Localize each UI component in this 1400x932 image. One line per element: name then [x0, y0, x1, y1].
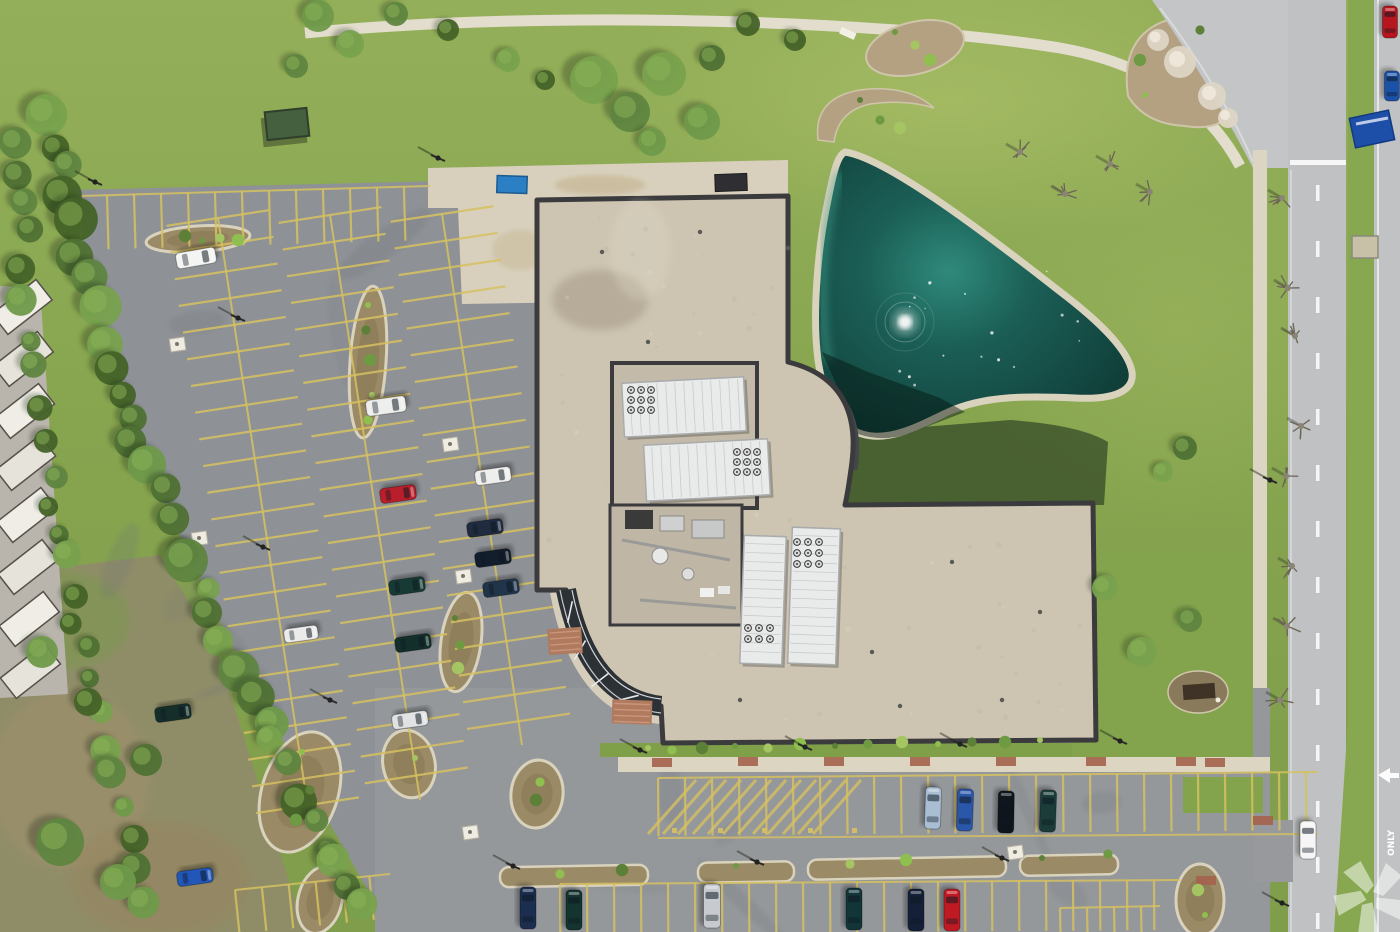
shrub: [910, 40, 919, 49]
gravel-speckle: [547, 537, 552, 542]
car-body: [908, 889, 924, 931]
gravel-speckle: [1057, 701, 1059, 703]
car-windshield: [1302, 828, 1314, 834]
gravel-speckle: [784, 718, 787, 721]
tree-canopy-highlight: [305, 3, 323, 21]
handicap-symbol-mark: [718, 828, 723, 833]
tree-canopy-highlight: [1095, 578, 1109, 592]
shrub: [896, 736, 908, 748]
vent-fan-hub: [746, 451, 748, 453]
tree-canopy-highlight: [284, 787, 304, 807]
flowering-tree-highlight: [1169, 51, 1185, 67]
shrub: [967, 737, 976, 746]
vent-fan-hub: [736, 451, 738, 453]
gravel-speckle: [598, 217, 600, 219]
vent-fan-hub: [630, 389, 632, 391]
car-body: [1300, 821, 1316, 859]
tree-canopy-highlight: [307, 811, 320, 824]
shrub: [832, 743, 838, 749]
shrub: [1192, 884, 1204, 896]
water-sparkle: [898, 370, 901, 373]
shrub: [732, 743, 738, 749]
tree-canopy-highlight: [62, 615, 74, 627]
tree-canopy-highlight: [537, 72, 548, 83]
car-body: [998, 791, 1015, 833]
stall-line: [1060, 908, 1061, 932]
utility-pad-cover: [1013, 850, 1017, 854]
shrub: [290, 814, 302, 826]
gravel-speckle: [746, 326, 752, 332]
sidewalk-south: [618, 757, 1270, 772]
blue-dumpster: [497, 175, 528, 193]
roof-small-vent: [1000, 698, 1004, 702]
utility-pad-cover: [197, 536, 201, 540]
tree-canopy-highlight: [641, 131, 656, 146]
car-hood-highlight: [960, 791, 971, 794]
water-sparkle: [913, 384, 916, 387]
tree-canopy-highlight: [349, 891, 366, 908]
car: [940, 886, 960, 931]
shrub: [863, 739, 872, 748]
gravel-speckle: [906, 625, 911, 630]
car-windshield: [568, 897, 580, 903]
car-windshield: [1042, 797, 1054, 804]
gravel-speckle: [643, 227, 648, 232]
car-rear-window: [927, 816, 939, 822]
car: [562, 887, 582, 930]
shrub: [232, 234, 244, 246]
bare-tree-crown: [1292, 333, 1298, 339]
tree-canopy-highlight: [40, 499, 51, 510]
water-sparkle: [997, 358, 1000, 361]
shrub: [555, 869, 564, 878]
vent-fan-hub: [758, 627, 760, 629]
tree-canopy-highlight: [195, 601, 212, 618]
light-pole: [327, 697, 332, 702]
red-paver-accent: [738, 757, 758, 766]
car-rear-window: [946, 918, 958, 924]
shrub: [199, 238, 205, 244]
water-sparkle: [1076, 320, 1079, 323]
car: [842, 885, 862, 930]
gravel-speckle: [1004, 607, 1006, 609]
shrub: [1134, 54, 1146, 66]
red-paver-accent: [910, 757, 930, 766]
tree-canopy-highlight: [36, 431, 49, 444]
roof-small-vent: [738, 698, 742, 702]
bare-tree-crown: [1279, 195, 1285, 201]
red-paver-accent: [824, 757, 844, 766]
vent-fan-hub: [650, 399, 652, 401]
car-body: [1039, 790, 1056, 833]
tree-canopy-highlight: [56, 154, 71, 169]
vent-fan-hub: [807, 563, 809, 565]
car-rear-window: [1302, 848, 1314, 853]
light-pole: [637, 747, 642, 752]
gravel-speckle: [843, 566, 846, 569]
car-windshield: [848, 896, 860, 903]
shrub: [1037, 737, 1043, 743]
gravel-speckle: [696, 253, 698, 255]
shrub: [1202, 912, 1208, 918]
lane-dash: [1316, 353, 1320, 369]
gravel-speckle: [710, 654, 713, 657]
shrub: [530, 794, 542, 806]
tree-canopy-highlight: [339, 33, 354, 48]
shrub: [412, 755, 418, 761]
bare-tree-crown: [1284, 623, 1290, 629]
car-rear-window: [848, 917, 860, 923]
stall-line: [1279, 772, 1280, 830]
vent-fan-hub: [747, 627, 749, 629]
tree-canopy-highlight: [277, 751, 292, 766]
gravel-speckle: [605, 481, 607, 483]
stall-line: [874, 776, 875, 834]
stall-line: [1117, 774, 1118, 832]
tree-canopy-highlight: [8, 257, 25, 274]
car-windshield: [927, 794, 939, 801]
car: [516, 884, 536, 929]
shrub: [999, 736, 1011, 748]
lane-dash: [1316, 745, 1320, 761]
vent-fan-hub: [640, 409, 642, 411]
lane-dash: [1316, 857, 1320, 873]
stall-line: [901, 776, 902, 834]
vent-fan-hub: [746, 471, 748, 473]
water-sparkle: [942, 355, 944, 357]
stall-line: [377, 188, 379, 242]
shrub: [763, 743, 772, 752]
vent-fan-hub: [758, 638, 760, 640]
tree-canopy-highlight: [386, 4, 399, 17]
gravel-speckle: [1059, 682, 1062, 685]
tree-canopy-highlight: [13, 191, 28, 206]
shrub: [935, 741, 941, 747]
gravel-speckle: [647, 270, 652, 275]
car-rear-window: [522, 916, 534, 922]
shrub: [535, 777, 544, 786]
utility-pad-cover: [461, 574, 465, 578]
stall-line: [847, 776, 848, 834]
parking-island-strip: [698, 861, 794, 883]
pergola-structure: [1183, 683, 1216, 700]
car-rear-window: [706, 915, 719, 921]
stall-line: [1171, 773, 1172, 831]
light-pole: [510, 863, 515, 868]
shrub: [364, 354, 376, 366]
tree-canopy-highlight: [439, 21, 451, 33]
stall-line: [1114, 907, 1115, 932]
flowering-tree-highlight: [1150, 32, 1161, 43]
flowering-tree-highlight: [1202, 86, 1216, 100]
car-body: [704, 884, 721, 928]
gravel-speckle: [787, 518, 792, 523]
tree-canopy-highlight: [575, 61, 601, 87]
tree-canopy-highlight: [29, 398, 43, 412]
stall-line: [1198, 773, 1199, 831]
stall-line: [1141, 906, 1142, 932]
gravel-speckle: [770, 286, 774, 290]
tree-canopy-highlight: [259, 728, 273, 742]
gravel-speckle: [910, 712, 913, 715]
car-body: [566, 890, 582, 930]
tree-canopy-highlight: [58, 202, 82, 226]
tree-canopy-highlight: [1180, 610, 1193, 623]
tree-canopy-highlight: [77, 691, 92, 706]
gravel-speckle: [692, 312, 695, 315]
roof-small-vent: [646, 340, 650, 344]
gravel-speckle: [660, 283, 666, 289]
car-hood-highlight: [947, 891, 958, 894]
roof-small-vent: [698, 230, 702, 234]
shrub: [179, 230, 191, 242]
dark-dumpster: [715, 173, 748, 191]
shrub: [894, 122, 906, 134]
gravel-speckle: [649, 332, 653, 336]
car-body: [944, 889, 960, 931]
car: [1035, 787, 1057, 833]
tree-canopy-highlight: [1175, 438, 1188, 451]
tree-canopy-highlight: [51, 527, 62, 538]
tree-canopy-highlight: [47, 468, 60, 481]
car-hood-highlight: [1303, 823, 1314, 826]
water-sparkle: [924, 308, 926, 310]
tree-canopy-highlight: [8, 287, 25, 304]
light-pole: [435, 155, 440, 160]
hvac-dark-unit: [625, 510, 653, 529]
stall-line: [161, 194, 163, 248]
car: [904, 886, 924, 931]
gravel-speckle: [1061, 708, 1064, 711]
shrub: [1103, 849, 1112, 858]
gravel-speckle: [933, 729, 935, 731]
tree-canopy-highlight: [41, 823, 67, 849]
tree-canopy-highlight: [3, 130, 20, 147]
vent-fan-hub: [756, 471, 758, 473]
lane-dash: [1316, 913, 1320, 929]
gravel-speckle: [717, 215, 719, 217]
vent-fan-hub: [640, 389, 642, 391]
bare-tree-crown: [1062, 191, 1068, 197]
gravel-speckle: [603, 247, 608, 252]
stall-line: [739, 777, 740, 835]
tree-canopy-highlight: [6, 164, 22, 180]
light-pole: [92, 179, 97, 184]
driveway-connector: [1253, 820, 1293, 882]
car-rear-window: [1387, 92, 1398, 96]
vent-fan-hub: [736, 461, 738, 463]
lane-dash: [1316, 409, 1320, 425]
stall-line: [1252, 773, 1253, 831]
shrub: [857, 97, 863, 103]
stall-line: [323, 189, 325, 243]
stall-line: [1063, 774, 1064, 832]
shrub: [1195, 25, 1204, 34]
vent-fan-hub: [807, 541, 809, 543]
tree-canopy-highlight: [133, 747, 151, 765]
vent-fan-hub: [630, 409, 632, 411]
tree-canopy-highlight: [1130, 640, 1147, 657]
car-hood-highlight: [1043, 792, 1054, 795]
car-hood-highlight: [928, 789, 939, 792]
lane-dash: [1316, 297, 1320, 313]
shrub: [845, 859, 854, 868]
water-sparkle: [1046, 271, 1048, 273]
roof-monitor: [740, 535, 786, 664]
stall-line: [1144, 774, 1145, 832]
only-road-marking: ONLY: [1387, 829, 1397, 856]
lane-dash: [1316, 465, 1320, 481]
hvac-white-unit: [660, 516, 684, 531]
car-hood-highlight: [523, 889, 534, 892]
gravel-speckle: [655, 346, 658, 349]
handicap-symbol-mark: [672, 828, 677, 833]
car-windshield: [1000, 798, 1012, 805]
shrub: [900, 854, 912, 866]
shrub: [733, 863, 739, 869]
gravel-speckle: [561, 400, 565, 404]
tree-canopy-highlight: [646, 56, 670, 80]
tree-canopy-highlight: [23, 334, 34, 345]
vent-fan-hub: [756, 451, 758, 453]
car-hood-highlight: [1387, 73, 1397, 76]
vent-fan-hub: [746, 461, 748, 463]
light-pole: [802, 744, 807, 749]
gravel-speckle: [694, 234, 697, 237]
stall-line: [1225, 773, 1226, 831]
lane-dash: [1316, 801, 1320, 817]
car-windshield: [959, 796, 971, 803]
hvac-tank-2: [682, 568, 694, 580]
vent-fan-hub: [769, 627, 771, 629]
shrub: [299, 749, 305, 755]
shrub: [616, 864, 628, 876]
tree-canopy-highlight: [116, 799, 127, 810]
tree-canopy-highlight: [123, 828, 138, 843]
gravel-speckle: [977, 709, 982, 714]
car-windshield: [706, 892, 719, 899]
handicap-symbol-mark: [808, 828, 813, 833]
car-hood-highlight: [911, 891, 922, 894]
utility-pad-cover: [175, 342, 179, 346]
utility-pad-cover: [468, 830, 472, 834]
stop-bar: [1290, 160, 1346, 165]
shed-roof: [265, 108, 310, 140]
hvac-tank: [652, 548, 668, 564]
gravel-speckle: [1003, 714, 1008, 719]
tree-canopy-highlight: [104, 868, 124, 888]
tree-canopy-highlight: [688, 108, 708, 128]
lane-dash: [1316, 689, 1320, 705]
shrub: [215, 233, 224, 242]
car-rear-window: [1042, 819, 1054, 825]
tree-canopy-highlight: [168, 543, 192, 567]
roof-small-vent: [870, 650, 874, 654]
tree-canopy-highlight: [29, 639, 47, 657]
pad-stain: [555, 175, 645, 195]
vent-fan-hub: [796, 541, 798, 543]
lane-dash: [1316, 241, 1320, 257]
stall-line: [404, 187, 406, 241]
gravel-speckle: [561, 374, 564, 377]
light-pole: [235, 315, 240, 320]
shrub: [645, 745, 651, 751]
tree-canopy-highlight: [131, 890, 148, 907]
roof-small-vent: [1038, 610, 1042, 614]
bare-tree-crown: [1147, 189, 1153, 195]
tree-canopy-highlight: [84, 289, 107, 312]
gravel-speckle: [930, 561, 934, 565]
tree-canopy-highlight: [56, 543, 72, 559]
light-pole: [999, 855, 1004, 860]
shrub: [1142, 92, 1148, 98]
tree-canopy-highlight: [786, 31, 798, 43]
roof-small-vent: [786, 246, 790, 250]
vent-fan-hub: [796, 563, 798, 565]
tree-canopy-highlight: [614, 96, 636, 118]
light-pole: [1267, 477, 1272, 482]
parking-island-strip: [1020, 854, 1118, 876]
vent-fan-hub: [818, 541, 820, 543]
gravel-speckle: [574, 430, 579, 435]
car-rear-window: [1385, 28, 1396, 32]
utility-pad-cover: [448, 442, 452, 446]
car-hood-highlight: [1001, 793, 1012, 796]
light-pole: [957, 741, 962, 746]
tree-canopy-highlight: [93, 738, 110, 755]
shrub: [452, 662, 464, 674]
lane-dash: [1316, 577, 1320, 593]
handicap-symbol-mark: [852, 828, 857, 833]
car-rear-window: [910, 918, 922, 924]
roof-small-vent: [898, 704, 902, 708]
gravel-speckle: [846, 626, 852, 632]
car-rear-window: [1000, 820, 1012, 826]
tree-canopy-highlight: [320, 847, 338, 865]
red-paver-accent: [1253, 816, 1273, 825]
handicap-symbol-mark: [762, 828, 767, 833]
gravel-speckle: [1032, 628, 1036, 632]
gravel-speckle: [699, 332, 703, 336]
bare-tree-crown: [1289, 563, 1295, 569]
shrub: [361, 325, 370, 334]
gravel-speckle: [893, 632, 895, 634]
tree-canopy-highlight: [80, 638, 92, 650]
gravel-speckle: [754, 512, 759, 517]
red-paver-accent: [1205, 758, 1225, 767]
shrub: [892, 29, 898, 35]
water-sparkle: [1061, 314, 1064, 317]
tree-canopy-highlight: [132, 449, 153, 470]
light-pole: [754, 859, 759, 864]
hvac-small-unit-2: [718, 586, 730, 594]
water-sparkle: [909, 306, 911, 308]
tree-canopy-highlight: [286, 56, 299, 69]
tree-canopy-highlight: [97, 760, 115, 778]
gravel-speckle: [732, 296, 737, 301]
car: [952, 786, 974, 832]
tree-canopy-highlight: [82, 671, 92, 681]
vent-fan-hub: [736, 471, 738, 473]
gravel-speckle: [976, 645, 981, 650]
tree-canopy-highlight: [66, 586, 80, 600]
car-hood-highlight: [1385, 8, 1395, 11]
tree-canopy-highlight: [160, 506, 178, 524]
light-pole: [1279, 900, 1284, 905]
stall-line: [269, 191, 271, 245]
shrub: [365, 302, 371, 308]
red-paver-accent: [1086, 757, 1106, 766]
